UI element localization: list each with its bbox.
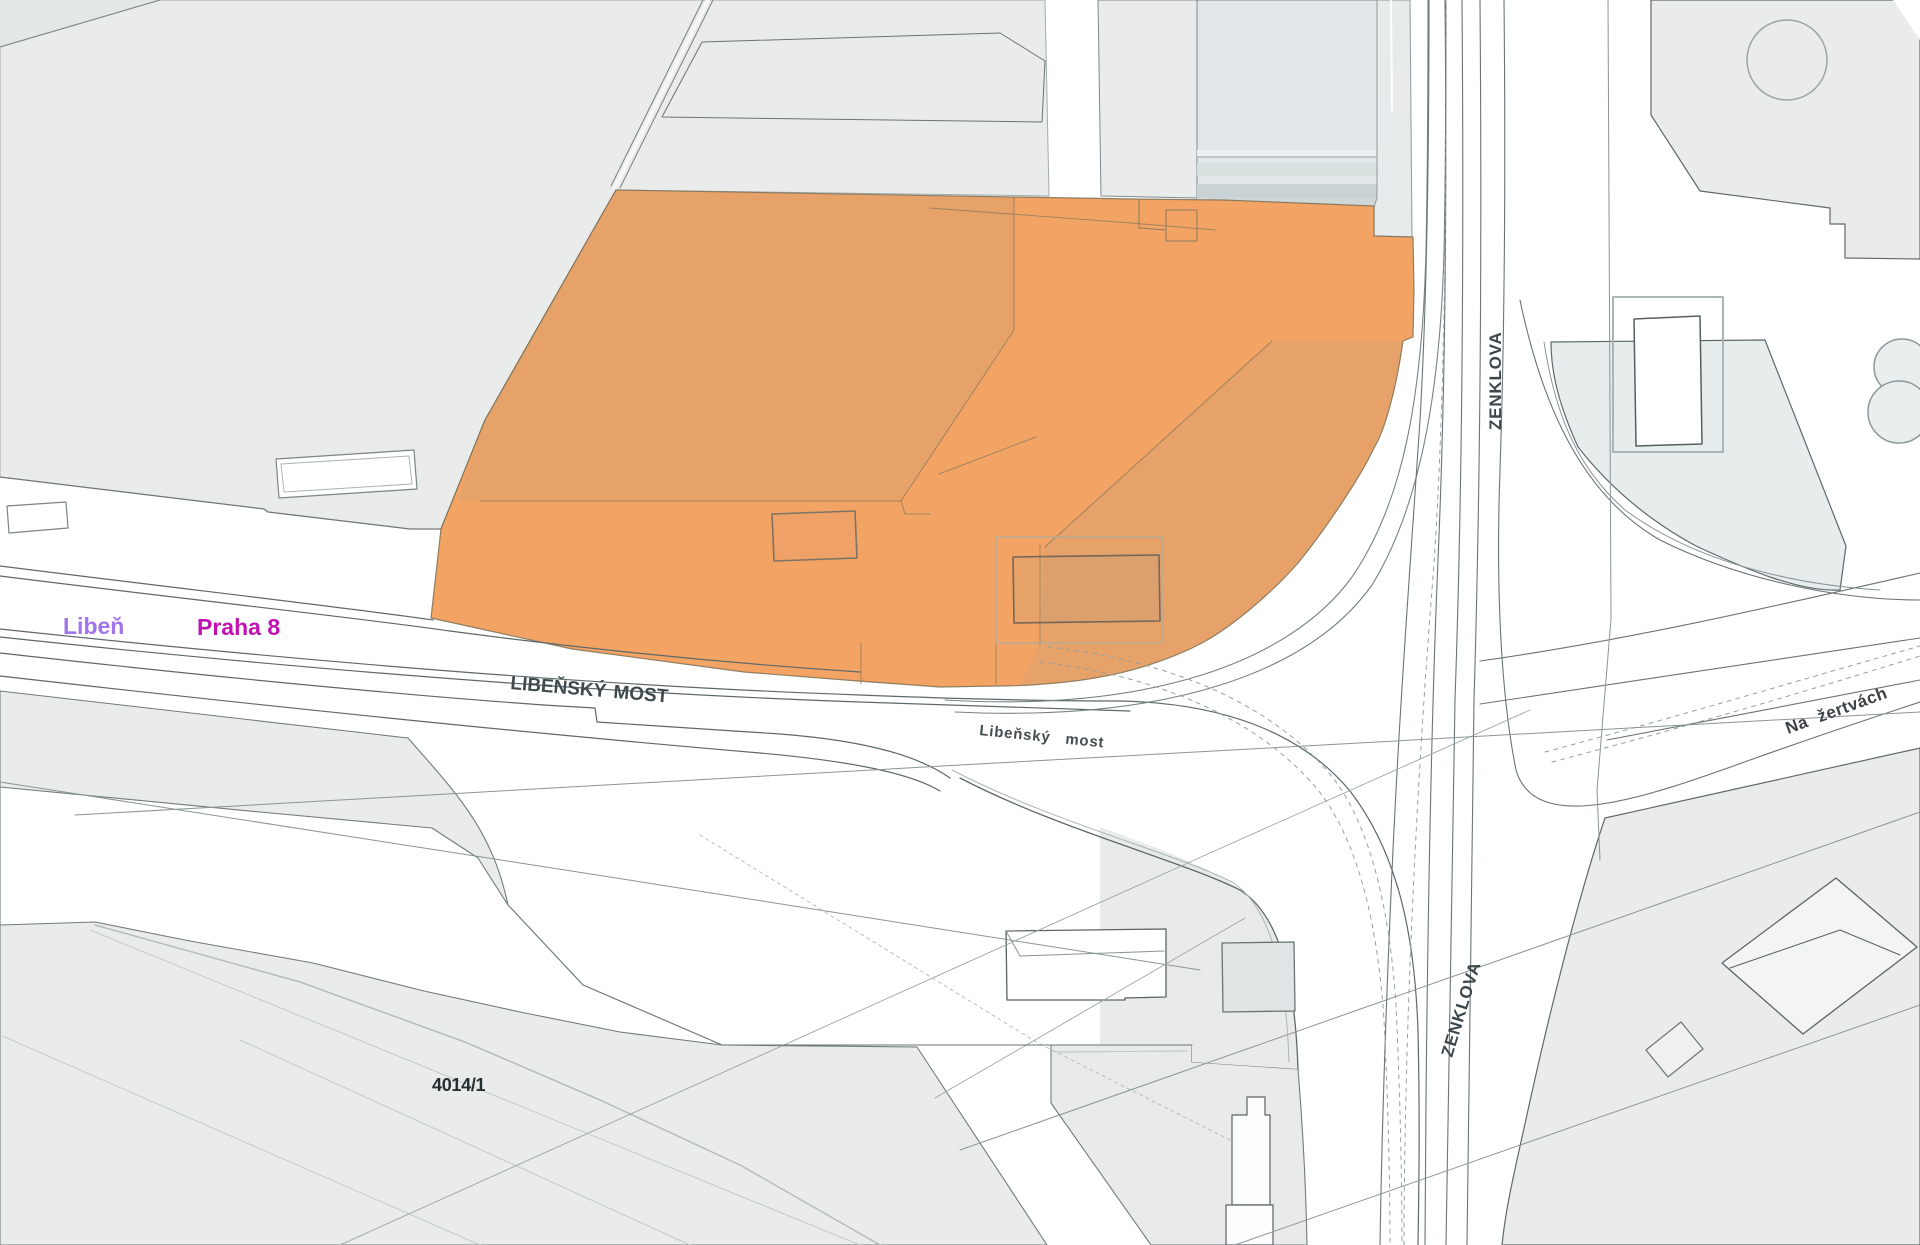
- svg-text:ZENKLOVA: ZENKLOVA: [1486, 331, 1505, 430]
- svg-text:Libeň: Libeň: [63, 613, 124, 639]
- svg-text:4014/1: 4014/1: [432, 1075, 486, 1095]
- svg-text:Praha 8: Praha 8: [197, 614, 280, 640]
